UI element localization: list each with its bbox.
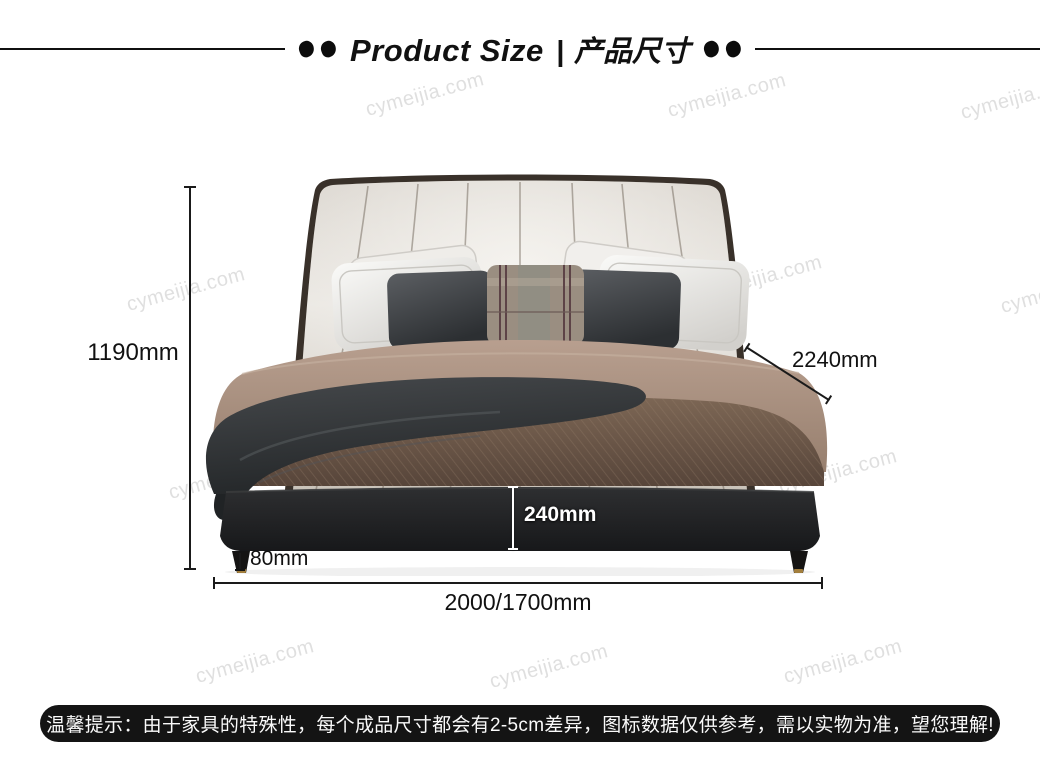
dimension-label-leg: 80mm xyxy=(250,547,308,571)
watermark: cymeijia.com xyxy=(958,71,1040,125)
watermark: cymeijia.com xyxy=(193,635,316,689)
dimension-label-height: 1190mm xyxy=(84,339,182,367)
watermark: cymeijia.com xyxy=(998,265,1040,319)
decor-dot-icon xyxy=(702,39,722,59)
title-rule-left xyxy=(0,48,285,50)
dimension-line-height xyxy=(189,186,191,570)
bed-photo xyxy=(200,160,840,576)
title-rule-right xyxy=(755,48,1040,50)
watermark: cymeijia.com xyxy=(487,640,610,694)
pillow-plaid-center xyxy=(487,265,584,345)
page-title-divider: | xyxy=(556,36,564,69)
page-title: Product Size | 产品尺寸 xyxy=(350,28,690,70)
decor-dot-icon xyxy=(319,39,339,59)
pillow-dark-right xyxy=(569,269,682,350)
page-title-en: Product Size xyxy=(350,33,544,69)
bed-base xyxy=(220,487,820,551)
section-title-bar: Product Size | 产品尺寸 xyxy=(0,26,1040,72)
notice-banner: 温馨提示：由于家具的特殊性，每个成品尺寸都会有2-5cm差异，图标数据仅供参考，… xyxy=(40,705,1000,742)
bed-leg-right xyxy=(790,551,808,573)
dimension-label-width: 2000/1700mm xyxy=(213,589,823,616)
floor-shadow xyxy=(225,567,815,576)
page-title-cn: 产品尺寸 xyxy=(574,28,690,70)
dimension-line-frame xyxy=(512,486,514,550)
dimension-label-frame: 240mm xyxy=(524,503,596,527)
decor-dots-left xyxy=(299,41,336,57)
decor-dot-icon xyxy=(724,39,744,59)
watermark: cymeijia.com xyxy=(363,68,486,122)
decor-dot-icon xyxy=(297,39,317,59)
bed-illustration xyxy=(200,160,840,576)
decor-dots-right xyxy=(704,41,741,57)
watermark: cymeijia.com xyxy=(781,635,904,689)
dimension-line-width xyxy=(213,582,823,584)
dimension-label-depth: 2240mm xyxy=(792,347,878,373)
pillow-dark-left xyxy=(387,270,496,350)
dimension-line-leg xyxy=(239,551,241,571)
notice-text: 温馨提示：由于家具的特殊性，每个成品尺寸都会有2-5cm差异，图标数据仅供参考，… xyxy=(46,710,994,737)
product-size-page: Product Size | 产品尺寸 cymeijia.com cymeiji… xyxy=(0,0,1040,780)
watermark: cymeijia.com xyxy=(665,69,788,123)
